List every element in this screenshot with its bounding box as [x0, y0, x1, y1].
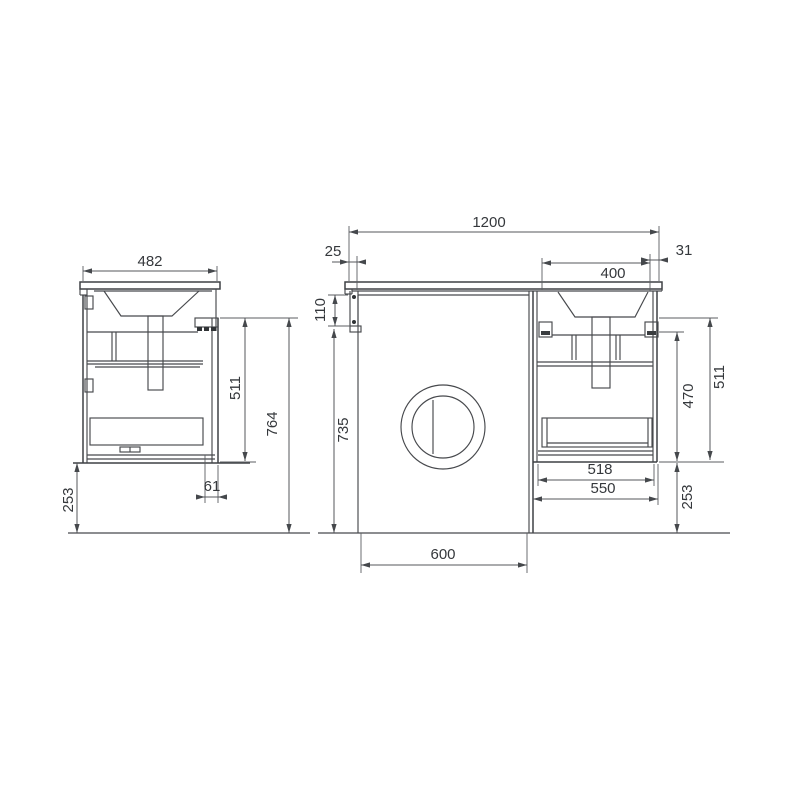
side-drain-pipe: [148, 316, 163, 390]
dim-side-overall-height: 764: [264, 411, 281, 436]
front-drain-pipe: [592, 317, 610, 388]
front-view: [318, 282, 730, 533]
dim-front-overall-width: 1200: [472, 214, 505, 231]
dim-side-bottom-offset: 61: [204, 478, 221, 495]
front-view-dimensions: 1200 25 31 400 110 735: [312, 214, 728, 573]
side-basin: [104, 291, 199, 316]
side-wall-bracket-top: [85, 296, 93, 309]
washing-machine-door: [401, 385, 485, 469]
dim-front-basin-width: 400: [600, 265, 625, 282]
front-basin: [558, 292, 648, 317]
side-wall-bracket-bottom: [85, 379, 93, 392]
side-drawer: [90, 418, 203, 445]
side-view-dimensions: 482 511 764 253 61: [60, 253, 298, 533]
drawing-page: 482 511 764 253 61: [0, 0, 800, 800]
side-mounting-rail: [195, 318, 218, 327]
side-worktop: [80, 282, 220, 289]
dim-side-clearance: 253: [60, 487, 77, 512]
dim-front-clearance: 253: [679, 484, 696, 509]
dim-front-cabinet-inner-width: 518: [587, 461, 612, 478]
front-worktop: [345, 282, 662, 289]
dim-front-carcass-height: 511: [711, 365, 728, 389]
dim-front-left-offset: 25: [325, 243, 342, 260]
dim-side-depth: 482: [137, 253, 162, 270]
dim-front-cabinet-width: 550: [590, 480, 615, 497]
dim-front-cabinet-body-height: 470: [680, 383, 697, 408]
dim-side-carcass-height: 511: [227, 376, 244, 400]
dim-front-right-offset: 31: [676, 242, 693, 259]
dim-front-niche-width: 600: [430, 546, 455, 563]
side-view: [68, 282, 310, 533]
dim-front-niche-height: 735: [335, 417, 352, 442]
dim-front-apron-height: 110: [312, 298, 329, 322]
technical-drawing: 482 511 764 253 61: [0, 0, 800, 800]
